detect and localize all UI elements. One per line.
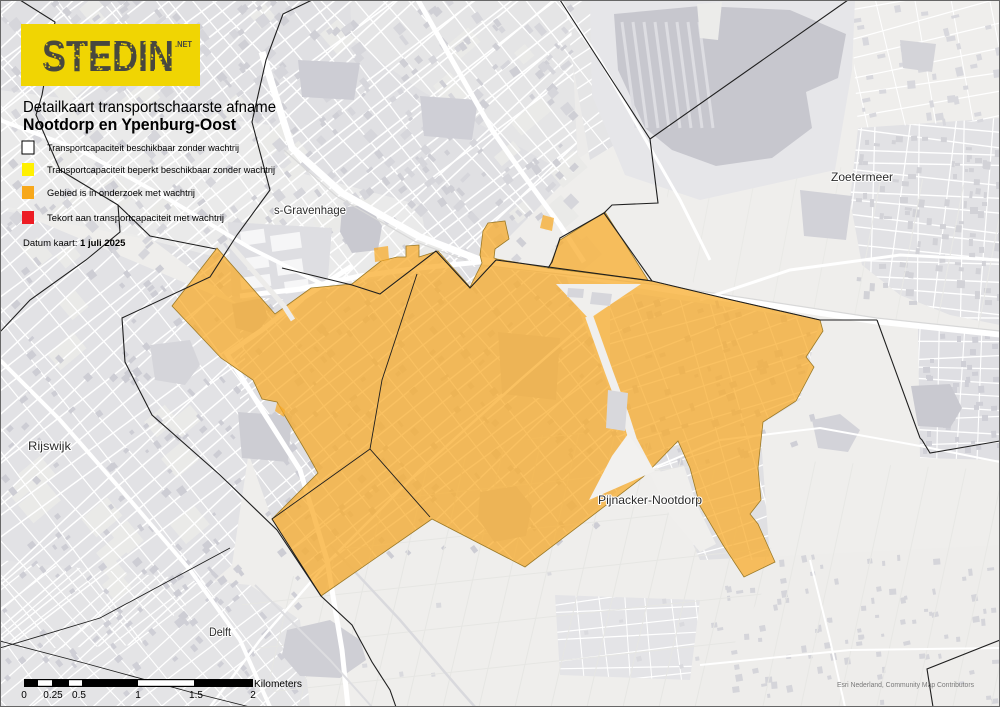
svg-text:Gebied is in onderzoek met wac: Gebied is in onderzoek met wachtrij (47, 188, 195, 198)
svg-text:Esri Nederland, Community Map: Esri Nederland, Community Map Contributo… (837, 682, 974, 689)
svg-text:1.5: 1.5 (189, 690, 203, 701)
svg-text:Zoetermeer: Zoetermeer (831, 170, 893, 184)
svg-text:Kilometers: Kilometers (254, 679, 302, 690)
svg-text:.NET: .NET (175, 40, 192, 49)
svg-text:Rijswijk: Rijswijk (28, 439, 72, 453)
svg-text:STEDIN: STEDIN (42, 32, 174, 81)
svg-text:0.25: 0.25 (43, 690, 63, 701)
svg-text:Nootdorp en Ypenburg-Oost: Nootdorp en Ypenburg-Oost (23, 116, 236, 134)
svg-text:Pijnacker-Nootdorp: Pijnacker-Nootdorp (598, 493, 702, 507)
svg-text:s-Gravenhage: s-Gravenhage (274, 203, 346, 217)
svg-text:Tekort aan transportcapaciteit: Tekort aan transportcapaciteit met wacht… (47, 213, 224, 223)
svg-text:Delft: Delft (209, 625, 232, 639)
svg-text:0: 0 (21, 690, 27, 701)
svg-text:0.5: 0.5 (72, 690, 86, 701)
svg-text:2: 2 (250, 690, 256, 701)
svg-text:Transportcapaciteit beschikbaa: Transportcapaciteit beschikbaar zonder w… (47, 143, 239, 153)
svg-text:Detailkaart transportschaarste: Detailkaart transportschaarste afname (23, 99, 276, 116)
svg-text:1: 1 (135, 690, 141, 701)
svg-text:Datum kaart: 1 juli 2025: Datum kaart: 1 juli 2025 (23, 238, 126, 249)
svg-text:Transportcapaciteit beperkt be: Transportcapaciteit beperkt beschikbaar … (47, 165, 275, 175)
